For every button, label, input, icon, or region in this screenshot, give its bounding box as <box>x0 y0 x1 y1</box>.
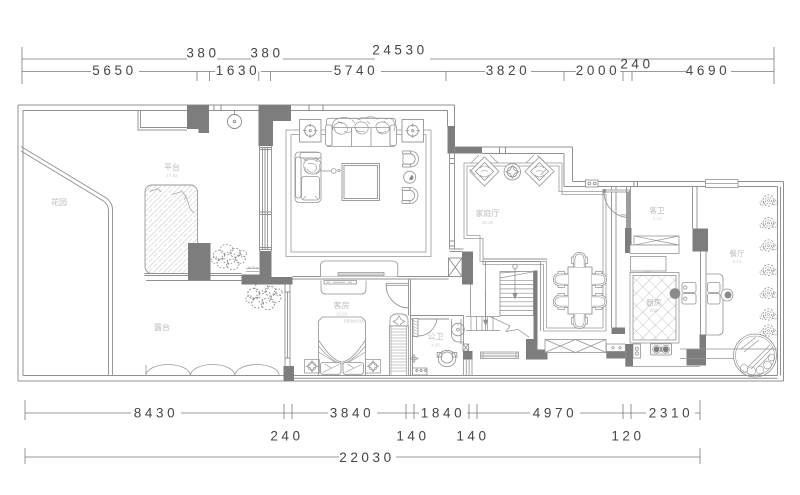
svg-text:4970: 4970 <box>533 406 577 421</box>
svg-text:9.15: 9.15 <box>733 259 742 264</box>
svg-text:露台: 露台 <box>154 322 170 332</box>
svg-text:2000: 2000 <box>576 63 620 78</box>
svg-text:8430: 8430 <box>134 406 178 421</box>
svg-text:3.10: 3.10 <box>653 216 662 221</box>
svg-text:花园: 花园 <box>51 197 67 207</box>
svg-text:17.82: 17.82 <box>166 173 178 178</box>
svg-text:4.30: 4.30 <box>431 343 440 348</box>
svg-text:240: 240 <box>270 429 303 444</box>
svg-text:公卫: 公卫 <box>428 332 444 341</box>
svg-text:2310: 2310 <box>649 406 693 421</box>
svg-text:22030: 22030 <box>339 450 395 465</box>
svg-text:平台: 平台 <box>164 162 180 172</box>
svg-text:380: 380 <box>186 46 219 61</box>
svg-text:3820: 3820 <box>486 63 530 78</box>
svg-text:1840: 1840 <box>421 406 465 421</box>
svg-text:5650: 5650 <box>92 63 136 78</box>
svg-text:24530: 24530 <box>372 43 428 58</box>
svg-text:1800x2000: 1800x2000 <box>344 319 365 324</box>
svg-text:380: 380 <box>250 46 283 61</box>
svg-text:240: 240 <box>620 57 653 72</box>
svg-text:5740: 5740 <box>334 63 378 78</box>
svg-text:3840: 3840 <box>330 406 374 421</box>
svg-text:120: 120 <box>611 429 644 444</box>
svg-text:1630: 1630 <box>216 63 260 78</box>
svg-text:6.00: 6.00 <box>650 308 659 313</box>
svg-text:4690: 4690 <box>686 63 730 78</box>
svg-text:140: 140 <box>396 429 429 444</box>
svg-text:家庭厅: 家庭厅 <box>476 208 500 218</box>
svg-text:客卫: 客卫 <box>650 205 665 215</box>
svg-text:客房: 客房 <box>334 300 350 310</box>
svg-text:厨房: 厨房 <box>647 297 662 307</box>
svg-text:140: 140 <box>456 429 489 444</box>
svg-text:15.20: 15.20 <box>336 312 348 317</box>
svg-text:餐厅: 餐厅 <box>730 249 745 258</box>
svg-text:28.35: 28.35 <box>482 220 494 225</box>
